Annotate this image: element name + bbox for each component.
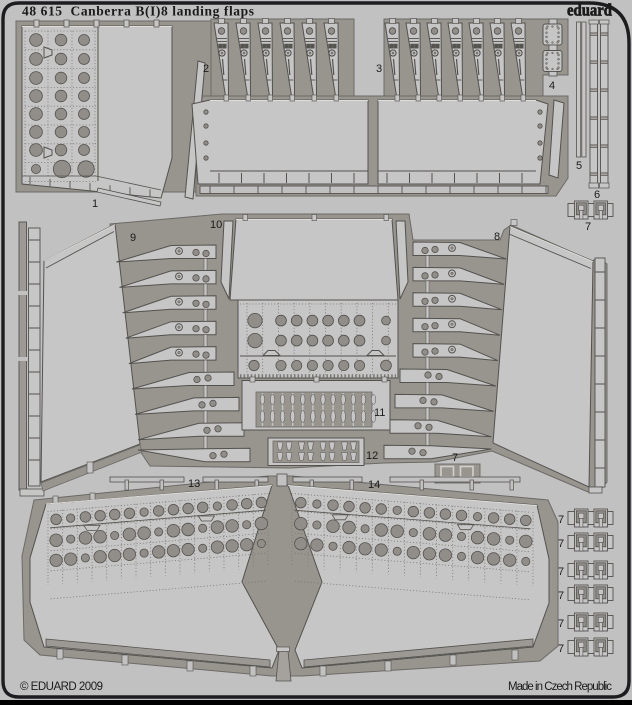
svg-text:7: 7 (452, 452, 458, 464)
svg-text:eduard: eduard (567, 1, 612, 20)
svg-text:6: 6 (594, 189, 600, 201)
svg-text:7: 7 (558, 514, 564, 526)
svg-text:7: 7 (558, 538, 564, 550)
svg-text:48 615 Canberra B(I)8 landing: 48 615 Canberra B(I)8 landing flaps (22, 4, 254, 19)
svg-text:© EDUARD 2009: © EDUARD 2009 (20, 681, 103, 693)
svg-text:4: 4 (549, 80, 555, 92)
svg-text:1: 1 (92, 198, 98, 210)
svg-text:7: 7 (558, 643, 564, 655)
svg-text:2: 2 (203, 63, 209, 75)
svg-text:13: 13 (188, 478, 200, 490)
svg-text:3: 3 (376, 63, 382, 75)
svg-text:7: 7 (558, 590, 564, 602)
svg-text:7: 7 (585, 221, 591, 233)
svg-text:12: 12 (366, 450, 378, 462)
svg-text:10: 10 (210, 219, 222, 231)
svg-text:Made in Czech Republic: Made in Czech Republic (508, 681, 612, 693)
svg-text:9: 9 (130, 232, 136, 244)
svg-text:5: 5 (576, 160, 582, 172)
svg-text:7: 7 (558, 618, 564, 630)
svg-text:11: 11 (374, 407, 385, 419)
svg-text:8: 8 (494, 231, 500, 243)
svg-text:7: 7 (558, 566, 564, 578)
svg-text:14: 14 (368, 479, 380, 491)
